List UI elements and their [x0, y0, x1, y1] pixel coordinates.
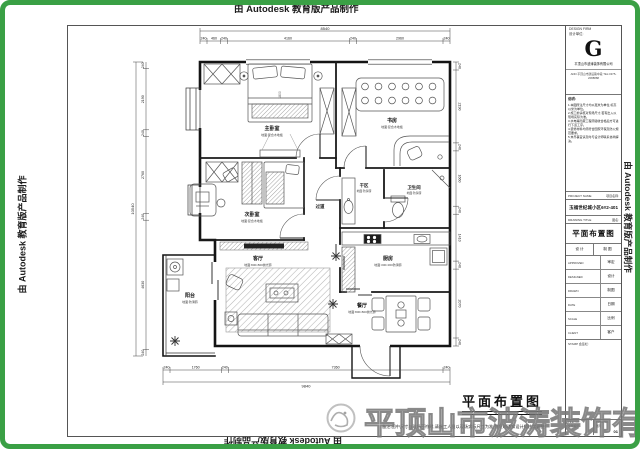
green-page-border: [0, 0, 640, 449]
drawing-sheet: 由 Autodesk 教育版产品制作 由 Autodesk 教育版产品制作 由 …: [0, 0, 640, 449]
